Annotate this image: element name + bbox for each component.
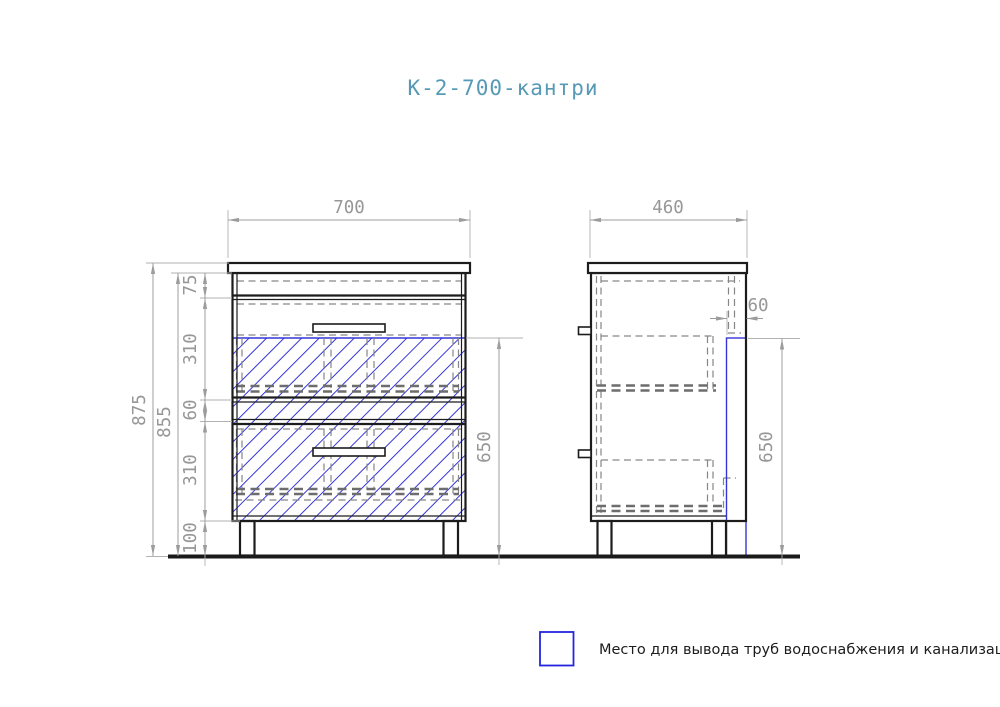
- upper-drawer-handle: [313, 324, 385, 332]
- dim-pipe-height-side: 650: [757, 431, 777, 463]
- dim-side-depth: 460: [652, 198, 684, 218]
- page-title: К-2-700-кантри: [407, 76, 598, 100]
- lower-drawer-handle: [313, 448, 385, 456]
- front-right-leg: [444, 521, 459, 556]
- dim-upper-drawer: 310: [181, 333, 201, 365]
- front-left-leg: [240, 521, 255, 556]
- legend: Место для вывода труб водоснабжения и ка…: [540, 632, 1000, 666]
- dim-top-section: 75: [181, 274, 201, 295]
- legend-label: Место для вывода труб водоснабжения и ка…: [599, 642, 1000, 658]
- front-view: [228, 263, 470, 556]
- dim-lower-drawer: 310: [181, 454, 201, 486]
- dim-front-width: 700: [333, 198, 365, 218]
- technical-drawing-page: К-2-700-кантри: [0, 0, 1000, 707]
- side-back-leg: [712, 521, 726, 556]
- countertop-side: [588, 263, 747, 273]
- dim-total-height: 875: [130, 394, 150, 426]
- lower-handle-profile: [579, 450, 592, 458]
- side-view: [579, 263, 748, 557]
- drawing-canvas: К-2-700-кантри: [0, 0, 1000, 707]
- cabinet-body-side: [591, 273, 746, 521]
- dim-pipe-depth-side: 60: [747, 296, 768, 316]
- legend-hatch-swatch: [540, 632, 574, 666]
- dim-leg-height: 100: [181, 522, 201, 554]
- dim-drawer-gap: 60: [181, 399, 201, 420]
- dim-pipe-height-front: 650: [475, 431, 495, 463]
- upper-handle-profile: [579, 327, 592, 335]
- countertop-front: [228, 263, 470, 273]
- dim-cabinet-height: 855: [155, 406, 175, 438]
- pipe-zone-hatch-plinth: [240, 521, 458, 556]
- side-front-leg: [598, 521, 612, 556]
